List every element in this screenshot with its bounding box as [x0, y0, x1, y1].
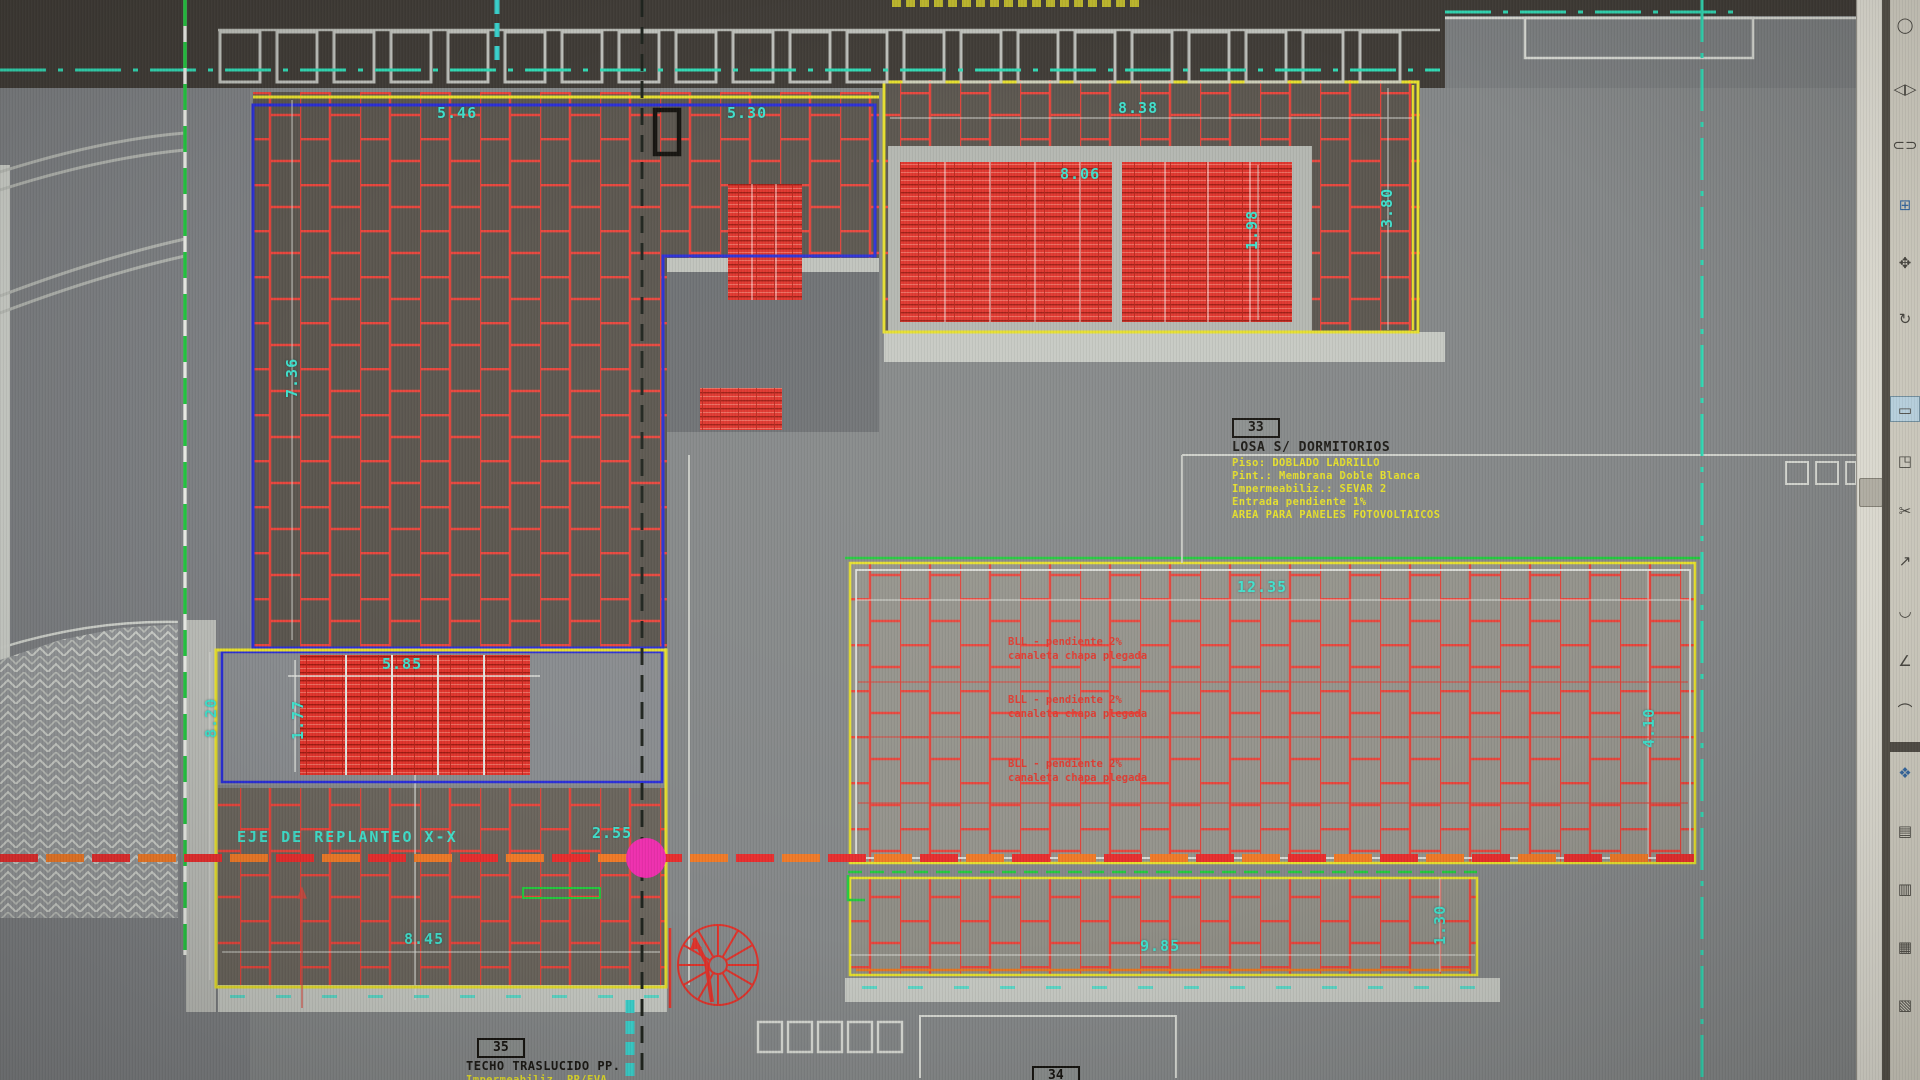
solar-panel-array-right: [1122, 162, 1292, 322]
move-icon[interactable]: ✥: [1890, 250, 1920, 276]
toolbar-icon-strip: ◯◁▷⊂⊃⊞✥↻▭◳✂↗◡∠⌒❖▤▥▦▧: [1890, 0, 1920, 1080]
offset-icon[interactable]: ⊂⊃: [1890, 132, 1920, 158]
draworder-below-icon[interactable]: ▧: [1890, 992, 1920, 1018]
region-icon[interactable]: ◯: [1890, 12, 1920, 38]
scrollbar[interactable]: [1856, 0, 1883, 1080]
draworder-front-icon[interactable]: ▤: [1890, 818, 1920, 844]
draworder-above-icon[interactable]: ▦: [1890, 934, 1920, 960]
solar-panel-block-small[interactable]: [700, 388, 782, 430]
mirror-icon[interactable]: ◁▷: [1890, 76, 1920, 102]
scale-icon[interactable]: ▭: [1890, 396, 1920, 422]
cad-canvas[interactable]: [0, 0, 1920, 1080]
trim-icon[interactable]: ✂: [1890, 498, 1920, 524]
draworder-back-icon[interactable]: ▥: [1890, 876, 1920, 902]
roof-strip-bottom-right[interactable]: [850, 878, 1477, 975]
extend-icon[interactable]: ↗: [1890, 548, 1920, 574]
toolbar-group-divider: [1890, 742, 1920, 752]
chamfer-icon[interactable]: ∠: [1890, 648, 1920, 674]
break-icon[interactable]: ◡: [1890, 598, 1920, 624]
axis-intersection-marker: [626, 838, 666, 878]
explode-icon[interactable]: ❖: [1890, 760, 1920, 786]
array-icon[interactable]: ⊞: [1890, 192, 1920, 218]
rotate-icon[interactable]: ↻: [1890, 306, 1920, 332]
solar-panel-block-upper[interactable]: [728, 184, 802, 300]
scrollbar-thumb[interactable]: [1859, 478, 1883, 507]
stretch-icon[interactable]: ◳: [1890, 448, 1920, 474]
fillet-icon[interactable]: ⌒: [1890, 698, 1920, 724]
cad-application-window: 5.465.308.388.061.983.807.3612.354.105.8…: [0, 0, 1920, 1080]
modify-toolbar: ◯◁▷⊂⊃⊞✥↻▭◳✂↗◡∠⌒❖▤▥▦▧: [1856, 0, 1920, 1080]
roof-strip-right[interactable]: [850, 563, 1695, 863]
toolbar-separator: [1882, 0, 1890, 1080]
